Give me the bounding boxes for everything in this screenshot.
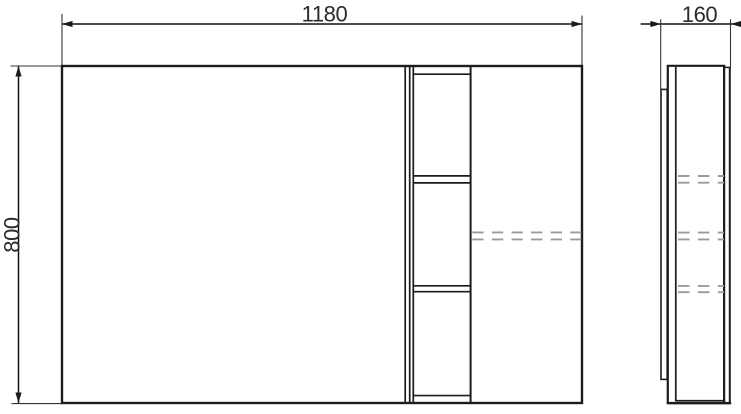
svg-text:1180: 1180 — [302, 2, 348, 27]
svg-text:800: 800 — [0, 217, 25, 253]
svg-text:160: 160 — [682, 2, 718, 27]
